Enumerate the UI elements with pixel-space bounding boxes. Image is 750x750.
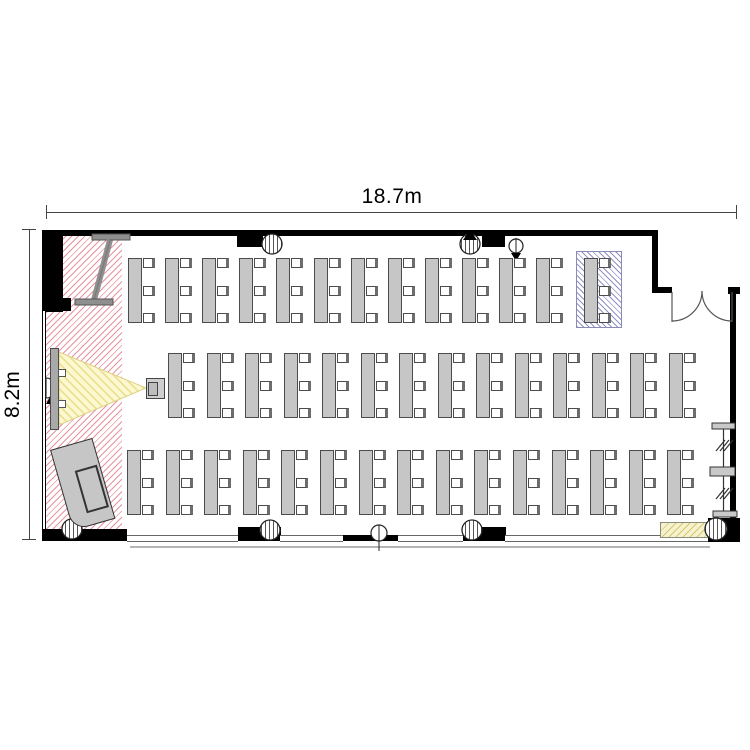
chair xyxy=(491,381,503,391)
desk-table xyxy=(590,450,604,515)
chair xyxy=(451,505,463,515)
chair xyxy=(142,450,154,460)
chair xyxy=(605,505,617,515)
chair xyxy=(296,478,308,488)
chair xyxy=(222,408,234,418)
dimension-tick-top-left xyxy=(46,205,47,219)
chair xyxy=(180,286,192,296)
desk-table xyxy=(438,353,452,418)
chair xyxy=(374,450,386,460)
desk-table xyxy=(425,258,439,323)
chair xyxy=(219,478,231,488)
chair xyxy=(183,353,195,363)
chair xyxy=(530,408,542,418)
chair xyxy=(403,313,415,323)
chair xyxy=(568,353,580,363)
counter xyxy=(660,522,708,538)
desk-table xyxy=(243,450,257,515)
chair xyxy=(291,286,303,296)
chair xyxy=(291,258,303,268)
chair xyxy=(299,353,311,363)
chair xyxy=(337,408,349,418)
wall-left-foot xyxy=(42,298,71,311)
desk-table xyxy=(361,353,375,418)
chair xyxy=(607,353,619,363)
chair xyxy=(645,408,657,418)
chair xyxy=(567,478,579,488)
chair xyxy=(453,353,465,363)
desk-table xyxy=(388,258,402,323)
chair xyxy=(376,381,388,391)
chair xyxy=(329,313,341,323)
chair xyxy=(219,505,231,515)
desk-table xyxy=(669,353,683,418)
chair xyxy=(551,286,563,296)
chair xyxy=(514,258,526,268)
desk-table xyxy=(474,450,488,515)
floor-plan: 18.7m 8.2m xyxy=(0,0,750,750)
desk-table xyxy=(630,353,644,418)
chair xyxy=(366,258,378,268)
wall-top-pier-2 xyxy=(482,235,505,247)
chair xyxy=(567,450,579,460)
desk-table xyxy=(165,258,179,323)
desk-table xyxy=(276,258,290,323)
chair xyxy=(142,505,154,515)
chair xyxy=(477,258,489,268)
chair xyxy=(403,258,415,268)
chair xyxy=(414,408,426,418)
chair xyxy=(335,478,347,488)
chair xyxy=(551,313,563,323)
chair xyxy=(329,258,341,268)
chair xyxy=(514,313,526,323)
highlighted-desk-frame xyxy=(576,251,622,328)
window-segment-2 xyxy=(280,535,343,542)
double-door-icon xyxy=(672,291,732,322)
chair xyxy=(514,286,526,296)
chair xyxy=(567,505,579,515)
desk-table xyxy=(284,353,298,418)
dimension-tick-left-top xyxy=(22,229,36,230)
chair xyxy=(260,353,272,363)
desk-table xyxy=(204,450,218,515)
chair xyxy=(440,313,452,323)
chair xyxy=(374,505,386,515)
chair xyxy=(414,381,426,391)
chair xyxy=(181,450,193,460)
chair xyxy=(143,258,155,268)
chair xyxy=(258,478,270,488)
chair xyxy=(530,381,542,391)
chair xyxy=(296,505,308,515)
chair xyxy=(528,505,540,515)
projection-screen-icon xyxy=(50,348,59,430)
chair xyxy=(219,450,231,460)
chair xyxy=(453,408,465,418)
desk-table xyxy=(553,353,567,418)
chair xyxy=(254,286,266,296)
chair xyxy=(489,450,501,460)
desk-table xyxy=(499,258,513,323)
dimension-line-left xyxy=(29,230,30,540)
chair xyxy=(451,450,463,460)
desk-table xyxy=(536,258,550,323)
wall-alcove-vertical xyxy=(652,230,658,292)
chair xyxy=(440,258,452,268)
desk-table xyxy=(128,258,142,323)
wall-bottom-pier-1 xyxy=(238,527,281,541)
window-sill-line xyxy=(130,546,710,548)
width-dimension-label: 18.7m xyxy=(330,185,454,209)
wall-right xyxy=(730,292,736,538)
desk-table xyxy=(592,353,606,418)
chair xyxy=(260,381,272,391)
chair xyxy=(254,258,266,268)
desk-table xyxy=(399,353,413,418)
chair xyxy=(605,450,617,460)
chair xyxy=(217,313,229,323)
desk-table xyxy=(322,353,336,418)
chair xyxy=(366,313,378,323)
desk-table xyxy=(462,258,476,323)
dimension-tick-left-bottom xyxy=(22,539,36,540)
chair xyxy=(568,408,580,418)
chair xyxy=(180,258,192,268)
chair xyxy=(682,450,694,460)
wall-bottom-left-block xyxy=(42,529,127,541)
chair xyxy=(217,286,229,296)
chair xyxy=(568,381,580,391)
chair xyxy=(453,381,465,391)
chair xyxy=(684,353,696,363)
screen-bracket xyxy=(58,400,66,408)
chair xyxy=(335,505,347,515)
desk-table xyxy=(351,258,365,323)
desk-table xyxy=(127,450,141,515)
chair xyxy=(376,408,388,418)
wall-top-pier-1 xyxy=(237,235,263,247)
desk-table xyxy=(397,450,411,515)
chair xyxy=(440,286,452,296)
desk-table xyxy=(436,450,450,515)
chair xyxy=(374,478,386,488)
chair xyxy=(183,408,195,418)
chair xyxy=(403,286,415,296)
chair xyxy=(412,478,424,488)
desk-table xyxy=(476,353,490,418)
chair xyxy=(528,450,540,460)
chair xyxy=(143,313,155,323)
chair xyxy=(291,313,303,323)
chair xyxy=(644,478,656,488)
chair xyxy=(491,408,503,418)
chair xyxy=(551,258,563,268)
height-dimension-label: 8.2m xyxy=(1,352,25,418)
wall-top xyxy=(42,230,658,236)
wall-bottom-pier-2 xyxy=(463,527,506,541)
chair xyxy=(477,286,489,296)
desk-table xyxy=(245,353,259,418)
chair xyxy=(414,353,426,363)
chair xyxy=(682,505,694,515)
wall-bottom-mid-segment xyxy=(343,535,399,541)
chair xyxy=(254,313,266,323)
desk-table xyxy=(168,353,182,418)
desk-table xyxy=(207,353,221,418)
chair xyxy=(337,381,349,391)
chair xyxy=(491,353,503,363)
chair xyxy=(605,478,617,488)
chair xyxy=(644,505,656,515)
dimension-line-top xyxy=(47,212,737,213)
chair xyxy=(222,381,234,391)
desk-table xyxy=(166,450,180,515)
chair xyxy=(607,408,619,418)
chair xyxy=(329,286,341,296)
dimension-tick-top-right xyxy=(736,205,737,219)
desk-table xyxy=(513,450,527,515)
chair xyxy=(258,505,270,515)
window-segment-3 xyxy=(398,535,463,542)
projector-lens xyxy=(148,382,158,396)
chair xyxy=(451,478,463,488)
chair xyxy=(183,381,195,391)
wall-left-lower xyxy=(42,311,46,538)
speaker-marker-icon xyxy=(511,253,521,261)
chair xyxy=(299,408,311,418)
chair xyxy=(489,478,501,488)
desk-table xyxy=(359,450,373,515)
desk-table xyxy=(629,450,643,515)
chair xyxy=(528,478,540,488)
chair xyxy=(299,381,311,391)
chair xyxy=(645,381,657,391)
chair xyxy=(644,450,656,460)
desk-table xyxy=(239,258,253,323)
chair xyxy=(296,450,308,460)
desk-table xyxy=(552,450,566,515)
chair xyxy=(376,353,388,363)
chair xyxy=(682,478,694,488)
chair xyxy=(530,353,542,363)
chair xyxy=(180,313,192,323)
chair xyxy=(217,258,229,268)
chair xyxy=(258,450,270,460)
chair xyxy=(684,408,696,418)
wall-door-jamb-left xyxy=(652,287,672,293)
desk-table xyxy=(314,258,328,323)
chair xyxy=(684,381,696,391)
chair xyxy=(366,286,378,296)
chair xyxy=(337,353,349,363)
chair xyxy=(645,353,657,363)
screen-bracket xyxy=(58,369,66,377)
wall-bottom-right-corner xyxy=(708,518,740,542)
chair xyxy=(412,505,424,515)
chair xyxy=(489,505,501,515)
window-segment-1 xyxy=(127,535,238,542)
desk-table xyxy=(515,353,529,418)
chair xyxy=(477,313,489,323)
chair xyxy=(142,478,154,488)
chair xyxy=(181,505,193,515)
desk-table xyxy=(281,450,295,515)
desk-table xyxy=(667,450,681,515)
chair xyxy=(412,450,424,460)
chair xyxy=(181,478,193,488)
chair xyxy=(222,353,234,363)
chair xyxy=(607,381,619,391)
chair xyxy=(335,450,347,460)
desk-table xyxy=(202,258,216,323)
chair xyxy=(260,408,272,418)
chair xyxy=(143,286,155,296)
desk-table xyxy=(320,450,334,515)
